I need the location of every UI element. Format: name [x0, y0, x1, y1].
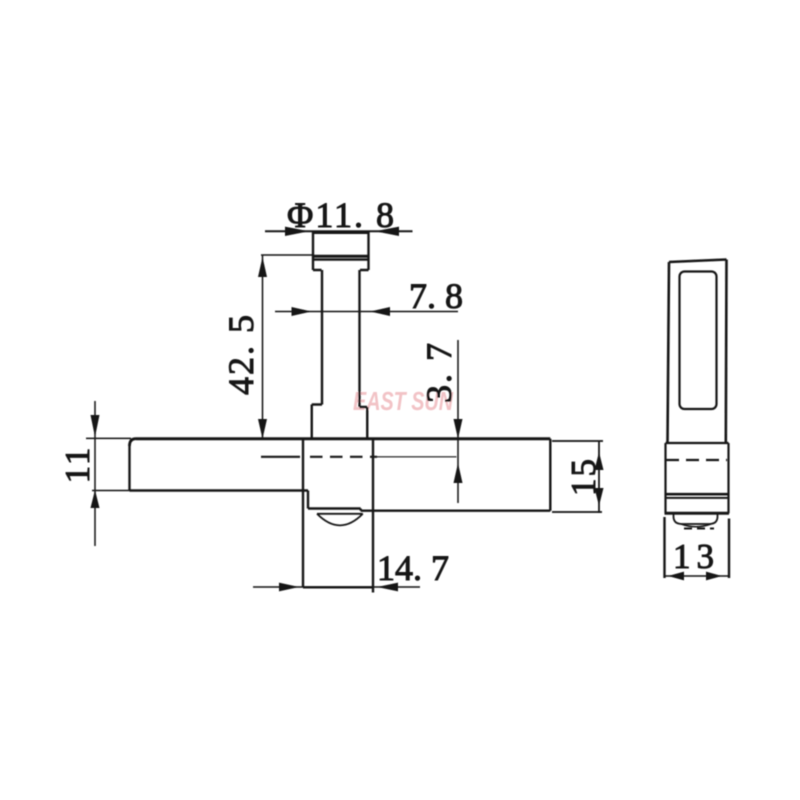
svg-text:14. 7: 14. 7 — [377, 548, 449, 588]
svg-text:15: 15 — [564, 457, 603, 496]
svg-text:7. 8: 7. 8 — [409, 276, 463, 316]
svg-text:Φ11. 8: Φ11. 8 — [287, 195, 396, 235]
svg-text:3. 7: 3. 7 — [419, 341, 459, 403]
svg-text:13: 13 — [673, 537, 720, 576]
svg-text:11: 11 — [58, 446, 97, 484]
svg-text:42. 5: 42. 5 — [221, 313, 261, 395]
